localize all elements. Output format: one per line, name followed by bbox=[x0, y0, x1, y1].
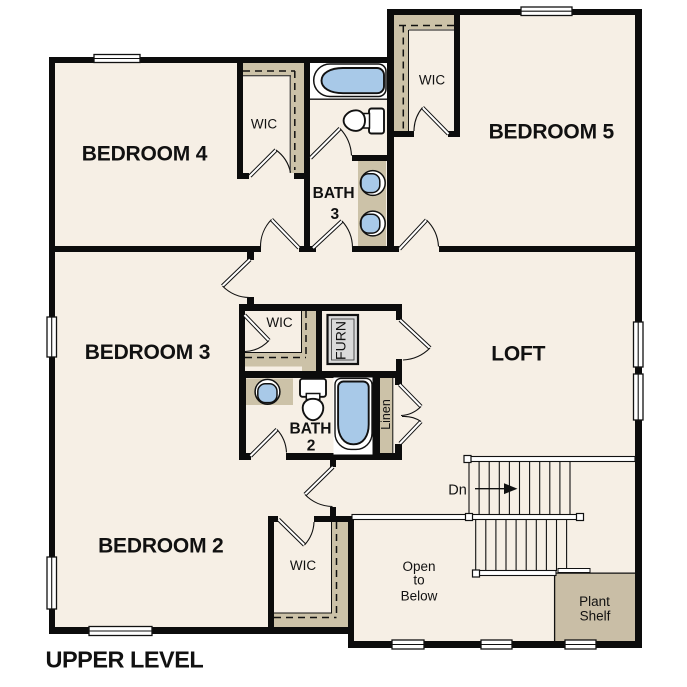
svg-text:BATH: BATH bbox=[313, 185, 355, 202]
svg-text:BEDROOM 2: BEDROOM 2 bbox=[98, 535, 223, 558]
svg-text:BEDROOM 5: BEDROOM 5 bbox=[489, 121, 615, 144]
svg-text:BEDROOM 4: BEDROOM 4 bbox=[82, 142, 208, 165]
svg-text:2: 2 bbox=[307, 438, 316, 455]
svg-text:WIC: WIC bbox=[251, 117, 277, 132]
svg-text:3: 3 bbox=[330, 206, 339, 223]
svg-text:WIC: WIC bbox=[419, 73, 445, 88]
svg-text:UPPER LEVEL: UPPER LEVEL bbox=[46, 647, 204, 673]
svg-text:WIC: WIC bbox=[266, 315, 292, 330]
svg-text:FURN: FURN bbox=[333, 321, 349, 360]
svg-text:Dn: Dn bbox=[448, 482, 467, 498]
svg-text:Linen: Linen bbox=[379, 399, 393, 430]
svg-text:Plant: Plant bbox=[579, 594, 610, 609]
svg-text:LOFT: LOFT bbox=[491, 343, 545, 366]
svg-text:BEDROOM 3: BEDROOM 3 bbox=[85, 341, 210, 364]
svg-text:Shelf: Shelf bbox=[580, 609, 611, 624]
svg-text:WIC: WIC bbox=[290, 558, 316, 573]
svg-text:BATH: BATH bbox=[290, 420, 332, 437]
svg-text:to: to bbox=[413, 572, 424, 587]
svg-text:Below: Below bbox=[401, 589, 438, 604]
